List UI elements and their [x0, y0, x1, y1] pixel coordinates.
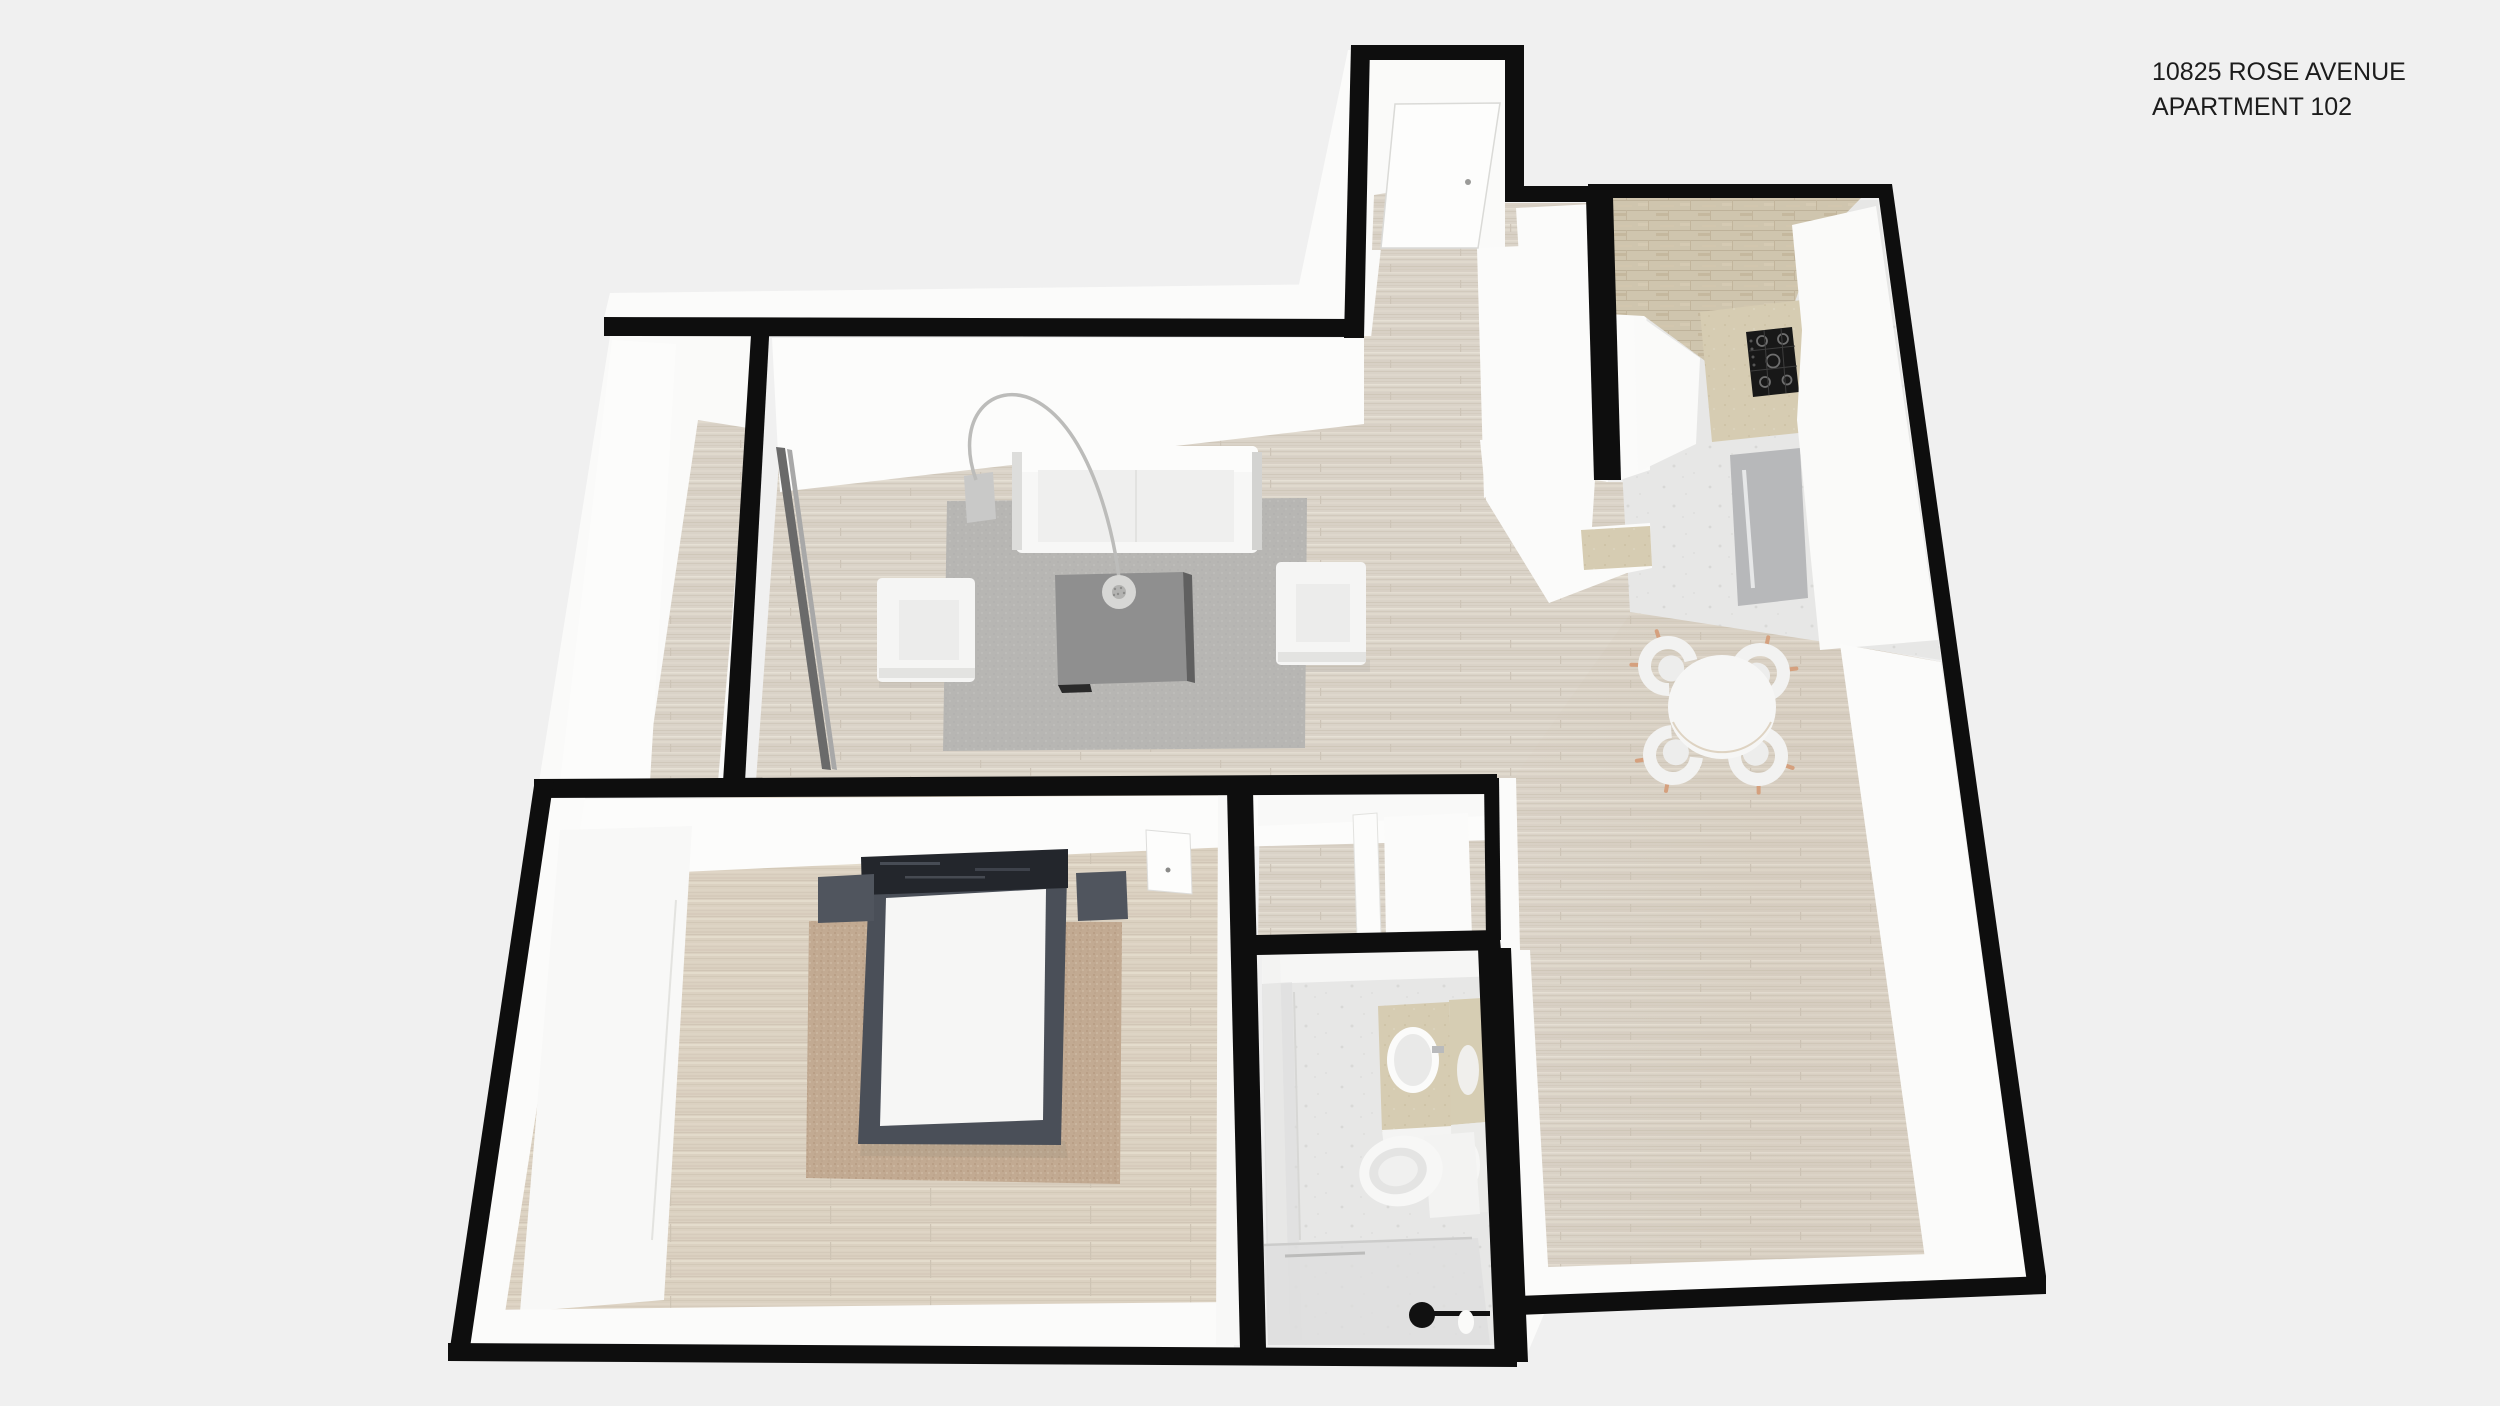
- svg-text:10825 ROSE AVENUE: 10825 ROSE AVENUE: [2152, 58, 2406, 86]
- svg-text:APARTMENT 102: APARTMENT 102: [2152, 93, 2352, 121]
